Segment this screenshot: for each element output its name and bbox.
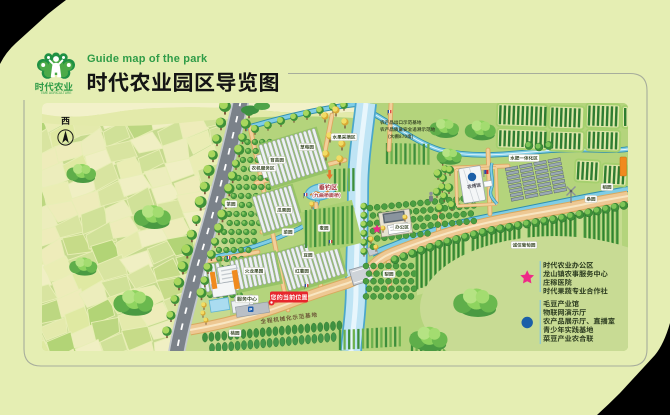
svg-text:P: P <box>249 307 252 312</box>
